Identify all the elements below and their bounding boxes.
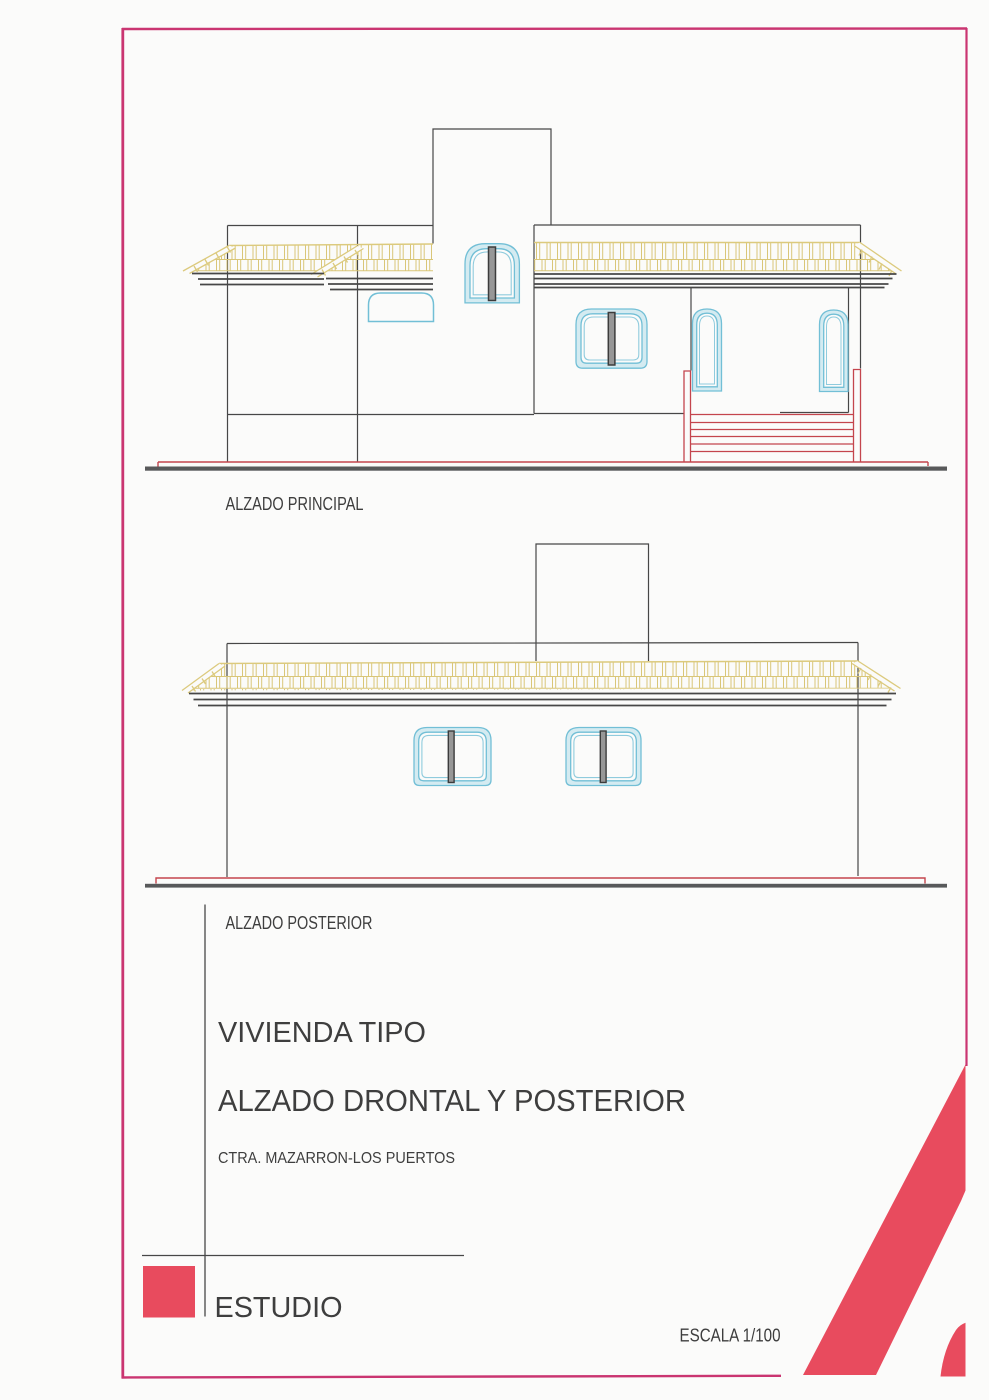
svg-text:ESTUDIO: ESTUDIO [215,1292,343,1324]
svg-text:CTRA. MAZARRON-LOS PUERTOS: CTRA. MAZARRON-LOS PUERTOS [218,1150,455,1167]
svg-text:ALZADO POSTERIOR: ALZADO POSTERIOR [226,912,373,933]
svg-text:ESCALA 1/100: ESCALA 1/100 [680,1325,781,1346]
svg-text:ALZADO PRINCIPAL: ALZADO PRINCIPAL [226,493,364,514]
svg-text:ALZADO DRONTAL Y POSTERIOR: ALZADO DRONTAL Y POSTERIOR [218,1083,686,1118]
svg-text:VIVIENDA TIPO: VIVIENDA TIPO [218,1017,426,1049]
